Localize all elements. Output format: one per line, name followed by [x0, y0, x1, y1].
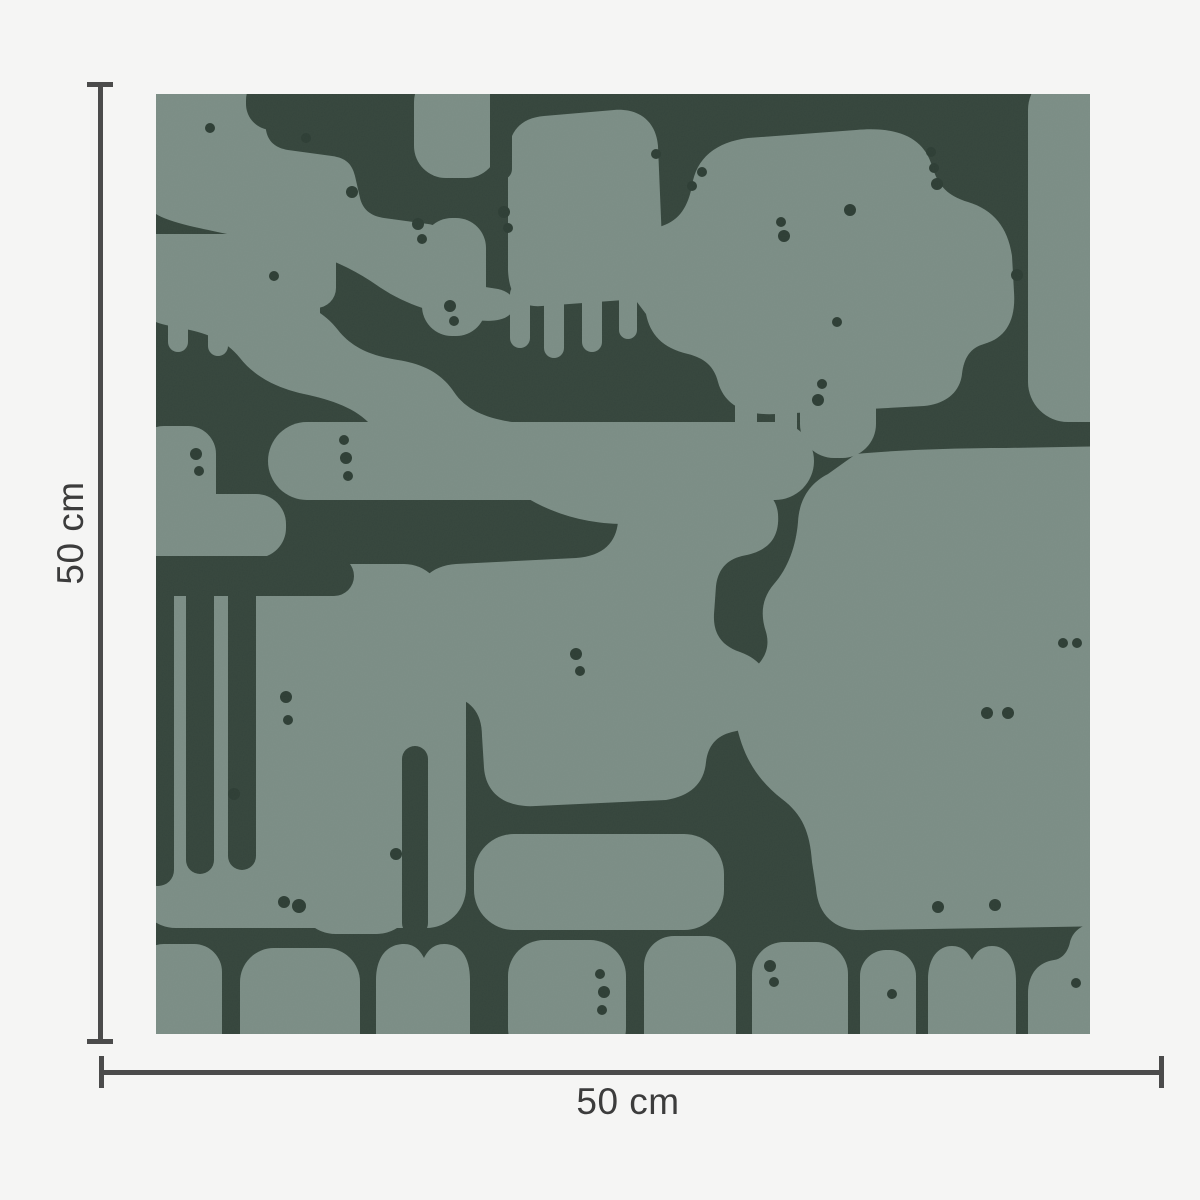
wallpaper-swatch-image — [156, 94, 1090, 1034]
horizontal-dimension-line — [100, 1070, 1163, 1075]
horizontal-dimension-right-tick — [1159, 1056, 1164, 1088]
pattern-artwork — [156, 94, 1090, 1034]
horizontal-dimension-label: 50 cm — [576, 1081, 679, 1123]
horizontal-dimension-left-tick — [99, 1056, 104, 1088]
vertical-dimension-line — [98, 84, 103, 1042]
diagram-canvas: 50 cm 50 cm — [0, 0, 1200, 1200]
texture-overlay — [156, 94, 1090, 1034]
vertical-dimension-top-tick — [87, 82, 113, 87]
vertical-dimension-label: 50 cm — [50, 481, 92, 584]
vertical-dimension-bottom-tick — [87, 1039, 113, 1044]
